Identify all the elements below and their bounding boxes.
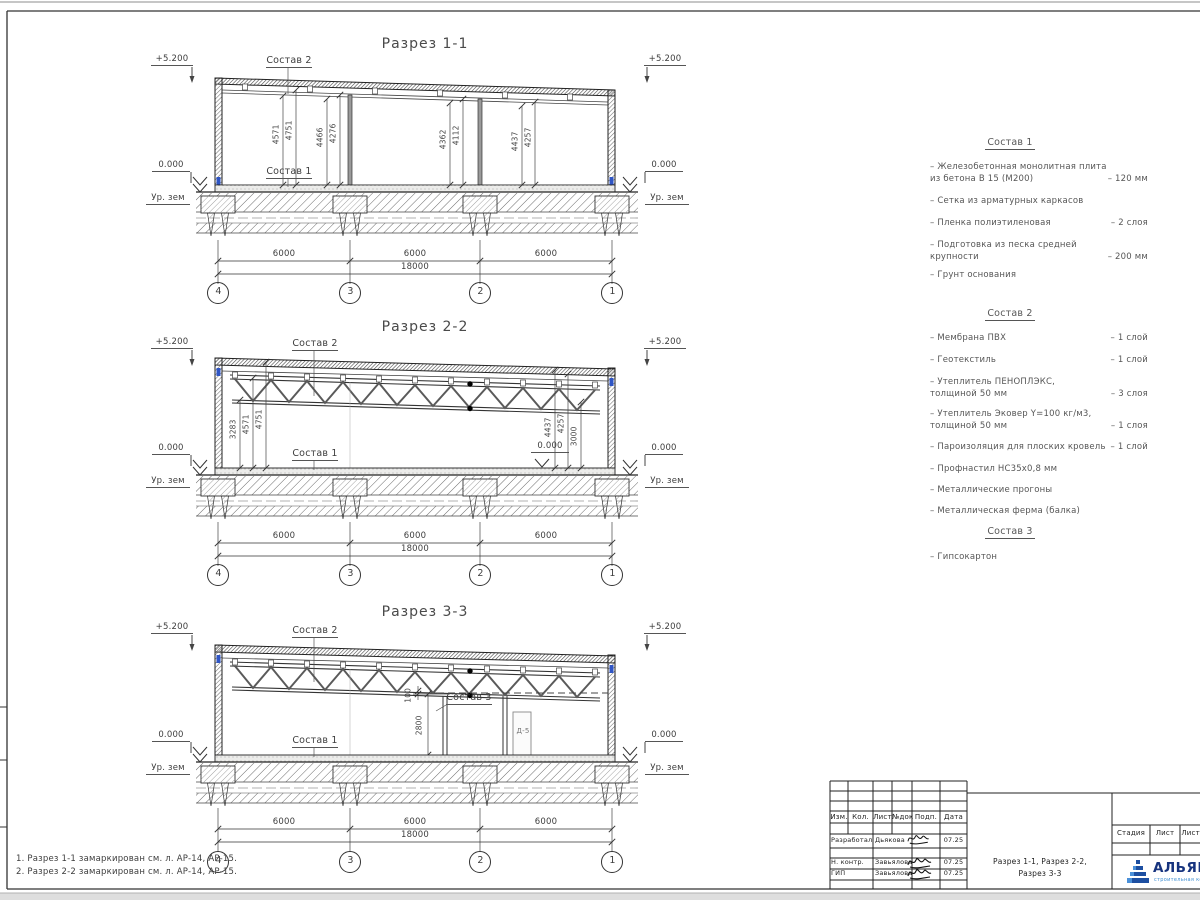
legend-item: – Металлическая ферма (балка) bbox=[930, 507, 1080, 517]
tb-name: Завьялова bbox=[875, 859, 912, 866]
legend-item: – Пленка полиэтиленовая bbox=[930, 219, 1051, 229]
legend-item: – Мембрана ПВХ bbox=[930, 334, 1006, 344]
tb-doc-title: Разрез 1-1, Разрез 2-2, bbox=[970, 858, 1110, 867]
legend-item: – Металлические прогоны bbox=[930, 486, 1052, 496]
tb-date: 07.25 bbox=[940, 870, 967, 877]
vdim-label: 4751 bbox=[286, 110, 295, 150]
section-title: Разрез 2-2 bbox=[345, 319, 505, 335]
ground-level-label: Ур. зем bbox=[645, 477, 689, 488]
axis-bubble-label: 3 bbox=[340, 569, 361, 580]
legend-value: – 1 слой bbox=[1060, 334, 1148, 344]
section-title: Разрез 1-1 bbox=[345, 36, 505, 52]
legend-value: – 3 слоя bbox=[1060, 390, 1148, 400]
axis-bubble-label: 2 bbox=[470, 287, 491, 298]
vdim-label: 3283 bbox=[230, 409, 239, 449]
vdim-label: 4276 bbox=[330, 113, 339, 153]
total-dim: 18000 bbox=[385, 545, 445, 555]
layer-callout-sostav2: Состав 2 bbox=[292, 339, 338, 351]
tb-doc-title: Разрез 3-3 bbox=[970, 870, 1110, 879]
logo-triangle bbox=[1127, 860, 1149, 883]
tb-col-header: Дата bbox=[940, 813, 967, 821]
span-dim: 6000 bbox=[385, 818, 445, 828]
tb-col-header: Лист bbox=[873, 813, 892, 821]
layer-callout-sostav1: Состав 1 bbox=[292, 736, 338, 748]
layer-callout-sostav3: Состав 3 bbox=[446, 693, 492, 705]
span-dim: 6000 bbox=[254, 532, 314, 542]
zero-level: 0.000 bbox=[645, 444, 683, 455]
legend-item: – Грунт основания bbox=[930, 271, 1016, 281]
legend-item: – Геотекстиль bbox=[930, 356, 996, 366]
tb-role: Н. контр. bbox=[831, 859, 864, 866]
vdim-label: 4437 bbox=[512, 121, 521, 161]
legend-value: – 1 слоя bbox=[1060, 422, 1148, 432]
axis-bubble-label: 2 bbox=[470, 569, 491, 580]
tb-col-header: №док bbox=[892, 813, 912, 821]
layer-callout-sostav1: Состав 1 bbox=[266, 167, 312, 179]
axis-bubble-label: 1 bbox=[602, 287, 623, 298]
elevation-mark: +5.200 bbox=[644, 55, 686, 66]
tb-date: 07.25 bbox=[940, 859, 967, 866]
elevation-mark: +5.200 bbox=[644, 338, 686, 349]
layer-callout-sostav2: Состав 2 bbox=[266, 56, 312, 68]
axis-bubble-label: 4 bbox=[208, 569, 229, 580]
vdim-label: 4257 bbox=[525, 117, 534, 157]
drawing-sheet: Разрез 1-1 +5.200 +5.200 Состав 2 Состав… bbox=[0, 0, 1200, 900]
ground-level-label: Ур. зем bbox=[146, 764, 190, 775]
legend-item: толщиной 50 мм bbox=[930, 390, 1007, 400]
total-dim: 18000 bbox=[385, 831, 445, 841]
axis-bubble-label: 2 bbox=[470, 856, 491, 867]
vdim-label: 4112 bbox=[453, 115, 462, 155]
layer-callout-sostav1: Состав 1 bbox=[292, 449, 338, 461]
tb-name: Завьялова bbox=[875, 870, 912, 877]
span-dim: 6000 bbox=[516, 532, 576, 542]
axis-bubble-label: 1 bbox=[602, 569, 623, 580]
elevation-mark: +5.200 bbox=[151, 623, 193, 634]
vdim-label: 4571 bbox=[273, 114, 282, 154]
note-line: 2. Разрез 2-2 замаркирован см. л. АР-14,… bbox=[16, 868, 237, 878]
tb-col-header: Подп. bbox=[912, 813, 940, 821]
elevation-mark: +5.200 bbox=[644, 623, 686, 634]
legend-value: – 2 слоя bbox=[1060, 219, 1148, 229]
axis-bubble-label: 1 bbox=[602, 856, 623, 867]
axis-bubble-label: 4 bbox=[208, 287, 229, 298]
legend-value: – 1 слой bbox=[1060, 356, 1148, 366]
axis-bubble-label: 3 bbox=[340, 287, 361, 298]
span-dim: 6000 bbox=[516, 818, 576, 828]
tb-stage-header: Листов bbox=[1180, 829, 1200, 837]
vdim-label: 3000 bbox=[571, 416, 580, 456]
elevation-mark: +5.200 bbox=[151, 338, 193, 349]
span-dim: 6000 bbox=[254, 250, 314, 260]
tb-stage-header: Стадия bbox=[1112, 829, 1150, 837]
legend-title-sostav3: Состав 3 bbox=[985, 527, 1035, 539]
vdim-label: 4257 bbox=[558, 403, 567, 443]
legend-item: – Железобетонная монолитная плита bbox=[930, 163, 1107, 173]
tb-col-header: Кол. bbox=[848, 813, 873, 821]
legend-item: – Сетка из арматурных каркасов bbox=[930, 197, 1083, 207]
vdim-label: 4466 bbox=[317, 117, 326, 157]
axis-bubble-label: 3 bbox=[340, 856, 361, 867]
legend-value: – 1 слой bbox=[1060, 443, 1148, 453]
zero-level: 0.000 bbox=[152, 731, 190, 742]
legend-title-sostav2: Состав 2 bbox=[985, 309, 1035, 321]
legend-item: – Утеплитель Эковер Y=100 кг/м3, bbox=[930, 410, 1091, 420]
legend-value: – 120 мм bbox=[1060, 175, 1148, 185]
tb-role: Разработал bbox=[831, 837, 872, 844]
vdim-label: 4751 bbox=[256, 399, 265, 439]
legend-item: – Утеплитель ПЕНОПЛЭКС, bbox=[930, 378, 1055, 388]
total-dim: 18000 bbox=[385, 263, 445, 273]
tb-col-header: Изм. bbox=[830, 813, 848, 821]
tb-date: 07.25 bbox=[940, 837, 967, 844]
legend-item: из бетона В 15 (М200) bbox=[930, 175, 1033, 185]
zero-level: 0.000 bbox=[645, 731, 683, 742]
ground-level-label: Ур. зем bbox=[645, 194, 689, 205]
zero-level: 0.000 bbox=[645, 161, 683, 172]
span-dim: 6000 bbox=[385, 532, 445, 542]
legend-item: – Подготовка из песка средней bbox=[930, 241, 1077, 251]
zero-level: 0.000 bbox=[152, 444, 190, 455]
vdim-label: 4362 bbox=[440, 119, 449, 159]
vdim-label: 4437 bbox=[545, 407, 554, 447]
tb-name: Дьякова bbox=[875, 837, 905, 844]
span-dim: 6000 bbox=[516, 250, 576, 260]
legend-item: крупности bbox=[930, 253, 979, 263]
logo-text: АЛЬЯНС bbox=[1153, 861, 1200, 877]
section-title: Разрез 3-3 bbox=[345, 604, 505, 620]
legend-title-sostav1: Состав 1 bbox=[985, 138, 1035, 150]
note-line: 1. Разрез 1-1 замаркирован см. л. АР-14,… bbox=[16, 855, 237, 865]
span-dim: 6000 bbox=[385, 250, 445, 260]
legend-item: толщиной 50 мм bbox=[930, 422, 1007, 432]
door-tag: Д-5 bbox=[514, 727, 532, 735]
tb-role: ГИП bbox=[831, 870, 845, 877]
ground-level-label: Ур. зем bbox=[645, 764, 689, 775]
tb-stage-header: Лист bbox=[1150, 829, 1180, 837]
zero-level: 0.000 bbox=[152, 161, 190, 172]
span-dim: 6000 bbox=[254, 818, 314, 828]
vdim-label: 100 bbox=[405, 675, 414, 715]
vdim-label: 4571 bbox=[243, 404, 252, 444]
logo-subtitle: строительная компания bbox=[1154, 878, 1200, 884]
elevation-mark: +5.200 bbox=[151, 55, 193, 66]
legend-item: – Гипсокартон bbox=[930, 553, 997, 563]
ground-level-label: Ур. зем bbox=[146, 194, 190, 205]
legend-item: – Профнастил НС35х0,8 мм bbox=[930, 465, 1057, 475]
ground-level-label: Ур. зем bbox=[146, 477, 190, 488]
legend-value: – 200 мм bbox=[1060, 253, 1148, 263]
layer-callout-sostav2: Состав 2 bbox=[292, 626, 338, 638]
vdim-label: 2800 bbox=[416, 705, 425, 745]
